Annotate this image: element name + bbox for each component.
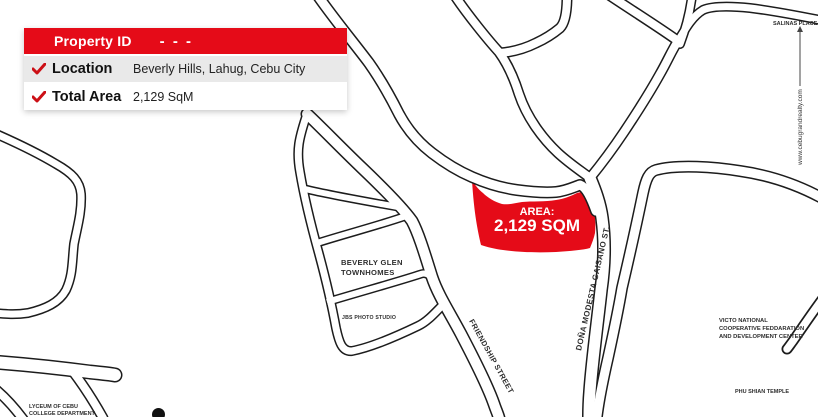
svg-text:2,129 SQM: 2,129 SQM [494, 216, 580, 235]
svg-text:www.cebugrandrealty.com: www.cebugrandrealty.com [797, 89, 804, 166]
